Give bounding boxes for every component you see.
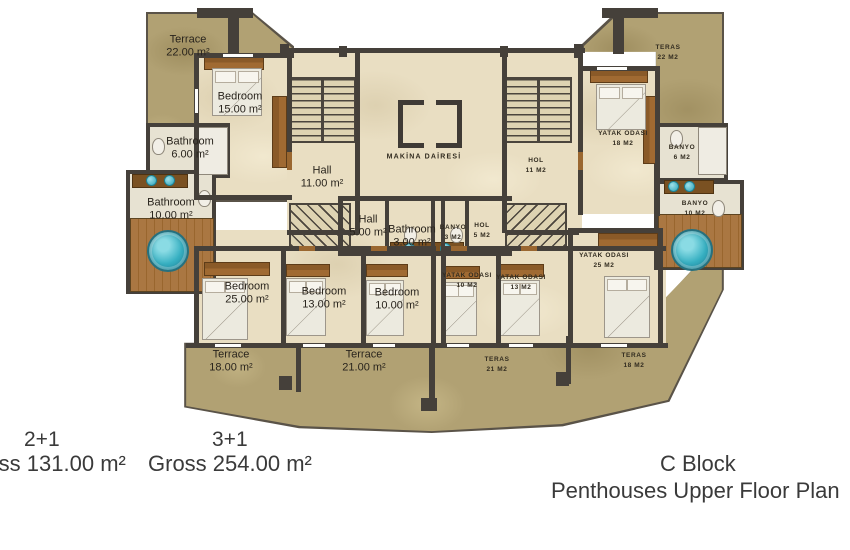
room-label-banyo-10: BANYO10 M2 — [682, 199, 708, 219]
room-area: 25 M2 — [579, 261, 629, 271]
wardrobe — [204, 262, 270, 276]
chimney — [197, 8, 253, 18]
room-label-bathroom-10: Bathroom10.00 m² — [147, 196, 195, 221]
door — [371, 246, 387, 251]
wardrobe — [590, 70, 648, 83]
staircase-lower-right — [505, 203, 567, 248]
wall — [431, 250, 436, 345]
room-name: YATAK ODASI — [579, 251, 629, 261]
room-area: 18 M2 — [598, 139, 648, 149]
wall-post — [556, 372, 569, 386]
room-area: 5 M2 — [474, 231, 491, 241]
window — [214, 343, 242, 348]
wall-post — [339, 46, 347, 57]
chimney — [613, 18, 624, 54]
chimney — [228, 18, 239, 54]
room-area: 3 M2 — [440, 233, 466, 243]
window — [446, 343, 470, 348]
unit-b-type: 3+1 — [212, 428, 248, 452]
unit-a-gross-area: Gross 131.00 m² — [0, 451, 126, 477]
room-area: 13.00 m² — [302, 298, 347, 311]
door — [299, 246, 315, 251]
room-area: 21 M2 — [484, 365, 509, 375]
room-area: 10 M2 — [442, 281, 492, 291]
wall — [568, 228, 573, 345]
room-label-bedroom-13: Bedroom13.00 m² — [302, 285, 347, 310]
room-area: 13 M2 — [496, 283, 546, 293]
bed — [596, 84, 646, 130]
wardrobe — [286, 264, 330, 277]
sink-icon — [164, 175, 175, 186]
jacuzzi-left — [147, 230, 189, 272]
room-area: 5.00 m² — [349, 226, 386, 239]
room-area: 11.00 m² — [301, 177, 344, 190]
room-label-yatak-odasi-10: YATAK ODASI10 M2 — [442, 271, 492, 291]
room-area: 6 M2 — [669, 153, 695, 163]
unit-a-type: 2+1 — [24, 428, 60, 452]
jacuzzi-right — [671, 229, 713, 271]
room-area: 18.00 m² — [209, 361, 252, 374]
room-name: Bedroom — [302, 285, 347, 298]
door — [287, 152, 292, 170]
room-name: TERAS — [621, 351, 646, 361]
room-name: Bathroom — [388, 223, 436, 236]
wall — [441, 246, 666, 251]
wall — [338, 196, 512, 201]
room-name: Hall — [301, 164, 344, 177]
sink-icon — [684, 181, 695, 192]
window — [600, 343, 628, 348]
wall — [186, 343, 668, 348]
room-label-hall-11: Hall11.00 m² — [301, 164, 344, 189]
wall — [655, 66, 660, 216]
room-label-teras-21: TERAS21 M2 — [484, 355, 509, 375]
toilet-icon — [152, 138, 165, 155]
room-name: HOL — [474, 221, 491, 231]
door — [521, 246, 537, 251]
room-label-bedroom-10: Bedroom10.00 m² — [375, 286, 420, 311]
plan-title: Penthouses Upper Floor Plan — [551, 478, 840, 504]
wall — [283, 48, 585, 53]
wall — [287, 230, 359, 235]
room-name: Terrace — [209, 348, 252, 361]
room-name: Terrace — [166, 33, 209, 46]
wall — [361, 250, 366, 345]
wall — [496, 250, 501, 345]
room-label-yatak-odasi-25: YATAK ODASI25 M2 — [579, 251, 629, 271]
wall — [194, 195, 292, 200]
room-name: Bedroom — [375, 286, 420, 299]
room-area: 22 M2 — [655, 53, 680, 63]
window — [372, 343, 396, 348]
wall — [502, 50, 507, 233]
room-name: TERAS — [655, 43, 680, 53]
room-name: Bedroom — [225, 280, 270, 293]
toilet-icon — [712, 200, 725, 217]
wall-post — [421, 398, 437, 411]
room-label-banyo-6: BANYO6 M2 — [669, 143, 695, 163]
wall — [658, 228, 663, 345]
shower — [698, 127, 727, 175]
window — [508, 343, 534, 348]
room-name: TERAS — [484, 355, 509, 365]
room-name: MAKİNA DAİRESİ — [387, 154, 462, 161]
room-label-yatak-odasi-13: YATAK ODASI13 M2 — [496, 273, 546, 293]
room-label-teras-22: TERAS22 M2 — [655, 43, 680, 63]
room-label-bathroom-6: Bathroom6.00 m² — [166, 135, 214, 160]
room-area: 10 M2 — [682, 209, 708, 219]
unit-b-gross-area: Gross 254.00 m² — [148, 451, 312, 477]
wall-post — [279, 376, 292, 390]
room-name: YATAK ODASI — [496, 273, 546, 283]
room-name: BANYO — [669, 143, 695, 153]
room-label-bedroom-25: Bedroom25.00 m² — [225, 280, 270, 305]
wall — [568, 228, 663, 233]
room-area: 6.00 m² — [166, 148, 214, 161]
sink-icon — [146, 175, 157, 186]
wall — [441, 250, 446, 345]
chimney — [602, 8, 658, 18]
room-name: Bathroom — [166, 135, 214, 148]
room-label-bathroom-3: Bathroom3.00 m² — [388, 223, 436, 248]
wall — [281, 250, 286, 345]
room-name: YATAK ODASI — [598, 129, 648, 139]
room-label-hall-5: Hall5.00 m² — [349, 213, 386, 238]
room-label-hol-5: HOL5 M2 — [474, 221, 491, 241]
floor-plan-page: { "plan": { "left_unit": { "rooms": [ {"… — [0, 0, 850, 550]
wall-post — [280, 44, 289, 58]
room-label-terrace-21: Terrace21.00 m² — [342, 348, 385, 373]
room-label-teras-18: TERAS18 M2 — [621, 351, 646, 371]
room-name: Terrace — [342, 348, 385, 361]
wardrobe — [598, 233, 658, 247]
wall — [355, 50, 360, 233]
room-area: 25.00 m² — [225, 293, 270, 306]
window — [302, 343, 326, 348]
room-area: 18 M2 — [621, 361, 646, 371]
sink-icon — [668, 181, 679, 192]
machine-room-platform — [436, 100, 462, 148]
window — [222, 53, 254, 58]
room-name: Bathroom — [147, 196, 195, 209]
wall — [429, 348, 435, 403]
bed — [604, 276, 650, 338]
room-area: 15.00 m² — [218, 103, 263, 116]
wall — [194, 53, 199, 198]
room-label-bedroom-15: Bedroom15.00 m² — [218, 90, 263, 115]
door — [578, 152, 583, 170]
room-area: 10.00 m² — [375, 299, 420, 312]
wall — [296, 348, 301, 392]
bathroom-counter — [132, 174, 188, 188]
window — [596, 66, 628, 71]
wardrobe — [366, 264, 408, 277]
room-name: BANYO — [682, 199, 708, 209]
room-label-terrace-18: Terrace18.00 m² — [209, 348, 252, 373]
room-label-hol-11: HOL11 M2 — [526, 156, 547, 176]
room-area: 11 M2 — [526, 166, 547, 176]
room-area: 21.00 m² — [342, 361, 385, 374]
room-area: 3.00 m² — [388, 236, 436, 249]
window — [194, 88, 199, 114]
wall-post — [574, 44, 583, 58]
wall-post — [500, 46, 508, 57]
machine-room-platform — [398, 100, 424, 148]
room-name: YATAK ODASI — [442, 271, 492, 281]
wardrobe — [272, 96, 287, 168]
room-label-banyo-3: BANYO3 M2 — [440, 223, 466, 243]
door — [451, 246, 467, 251]
staircase-upper-right — [504, 77, 572, 143]
block-name: C Block — [660, 451, 736, 477]
room-name: Bedroom — [218, 90, 263, 103]
staircase-upper-left — [288, 77, 356, 143]
room-name: Hall — [349, 213, 386, 226]
room-name: HOL — [526, 156, 547, 166]
room-label-makina-dairesi: MAKİNA DAİRESİ — [387, 154, 462, 161]
room-label-terrace-22: Terrace22.00 m² — [166, 33, 209, 58]
room-area: 22.00 m² — [166, 46, 209, 59]
wall — [194, 250, 199, 345]
room-name: BANYO — [440, 223, 466, 233]
wall — [578, 50, 583, 215]
room-area: 10.00 m² — [147, 209, 195, 222]
room-label-yatak-odasi-18: YATAK ODASI18 M2 — [598, 129, 648, 149]
wall — [287, 58, 292, 152]
